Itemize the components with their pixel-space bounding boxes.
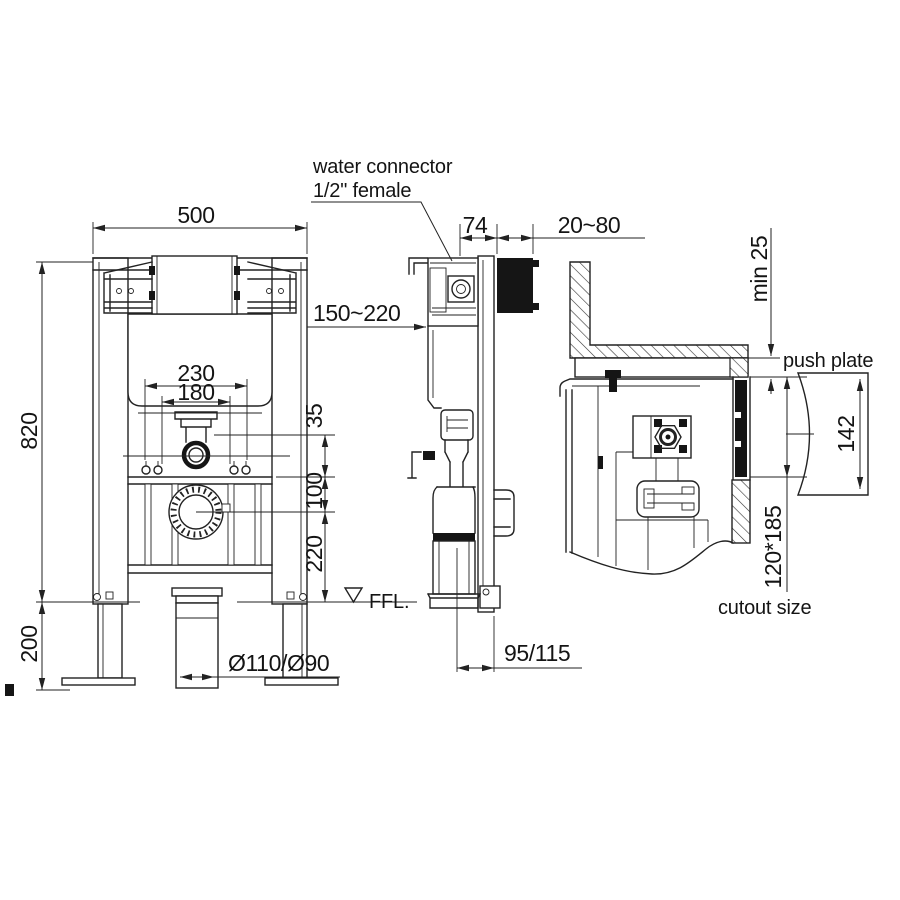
flush-rod-mechanism — [637, 458, 699, 570]
dim-label-220: 220 — [301, 535, 327, 572]
stop-valve-lever — [408, 451, 435, 478]
dim-label-drain: Ø110/Ø90 — [228, 650, 329, 676]
cutout-frame-strip — [733, 377, 750, 480]
wall-bracket-block — [497, 258, 539, 313]
rail-tab — [494, 490, 514, 536]
push-plate-label: push plate — [783, 350, 873, 372]
water-connector-label-2: 1/2" female — [313, 180, 411, 202]
technical-drawing: 500 820 200 230 180 35 100 220 — [0, 0, 900, 900]
dim-label-100: 100 — [301, 472, 327, 509]
drain-pipe — [172, 588, 222, 688]
dim-inlet-range: 150~220 — [307, 300, 426, 327]
dim-label-120-185: 120*185 — [760, 506, 786, 589]
access-box — [149, 256, 240, 314]
dim-wall-gap: 20~80 — [497, 212, 645, 254]
dim-label-95-115: 95/115 — [504, 640, 570, 666]
water-connector-box — [409, 258, 478, 326]
dim-floor-zone: 200 — [16, 602, 42, 690]
dim-outlet-offset: 95/115 — [457, 616, 582, 672]
dim-label-180: 180 — [177, 379, 214, 405]
dim-label-142: 142 — [833, 415, 859, 452]
ffl-marker: FFL. — [237, 588, 417, 613]
dim-label-20-80: 20~80 — [558, 212, 621, 238]
dim-label-500: 500 — [177, 202, 214, 228]
level-triangle-icon — [345, 588, 362, 602]
dim-label-35: 35 — [301, 404, 327, 429]
drawing-canvas: 500 820 200 230 180 35 100 220 — [0, 0, 900, 900]
dim-label-820: 820 — [16, 412, 42, 449]
break-line — [570, 541, 733, 574]
dim-label-150-220: 150~220 — [313, 300, 400, 326]
edge-mark — [5, 684, 14, 696]
dim-label-200: 200 — [16, 625, 42, 662]
front-view — [5, 256, 338, 696]
water-connector-callout: water connector 1/2" female — [311, 156, 453, 261]
ffl-label: FFL. — [369, 591, 409, 613]
actuator-box — [633, 416, 691, 458]
dim-depth-74: 74 — [460, 212, 497, 256]
cutout-wall-block — [732, 480, 750, 543]
flush-outlet-fitting — [175, 412, 217, 467]
water-connector-label-1: water connector — [312, 156, 453, 178]
drain-pipe-side — [428, 533, 480, 672]
wall-structure — [570, 262, 748, 358]
frame-edge-lines — [566, 386, 708, 566]
cistern-profile — [428, 326, 473, 440]
pipe-bell — [428, 594, 480, 608]
wall-rail — [478, 256, 500, 612]
dim-label-74: 74 — [463, 212, 488, 238]
dim-cutout: 120*185 — [750, 377, 807, 592]
side-view — [408, 256, 539, 672]
dim-label-min25: min 25 — [746, 236, 772, 303]
dim-frame-width: 500 — [93, 202, 307, 254]
drain-elbow — [433, 440, 475, 533]
hanger-hook — [409, 258, 427, 274]
section-view — [560, 262, 868, 574]
cutout-size-label: cutout size — [718, 597, 811, 619]
finish-band — [575, 358, 748, 377]
